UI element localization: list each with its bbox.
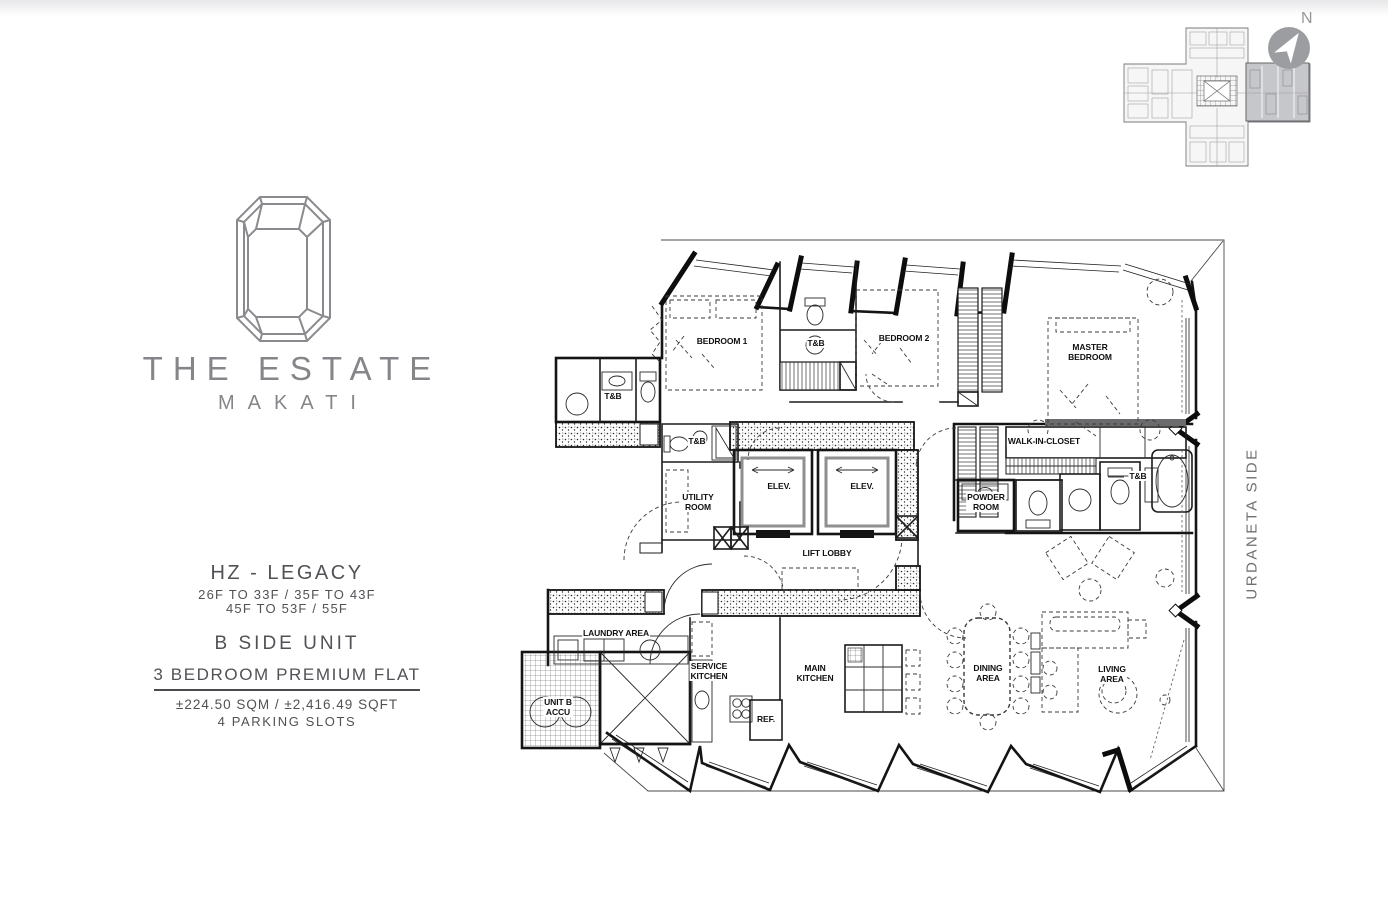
master-sitting-corner: [1046, 536, 1174, 601]
room-label-powder-room: POWDER ROOM: [966, 492, 1006, 512]
room-label-tb-master: T&B: [1128, 471, 1147, 481]
key-plan-highlighted-unit: [1246, 63, 1309, 121]
tower-name: HZ - LEGACY: [117, 562, 457, 585]
room-label-bedroom-1: BEDROOM 1: [696, 336, 749, 346]
room-label-living-area: LIVING AREA: [1097, 664, 1127, 684]
room-label-service-kitchen: SERVICE KITCHEN: [689, 661, 728, 681]
urdaneta-side-label: URDANETA SIDE: [1244, 444, 1261, 604]
bedroom2-wardrobe: [958, 288, 1002, 406]
unit-plan: [522, 254, 1197, 792]
floor-plan-canvas: N: [0, 0, 1388, 912]
floor-plan-sheet: N: [0, 0, 1388, 912]
room-label-tb-utility: T&B: [687, 436, 706, 446]
room-label-utility-room: UTILITY ROOM: [681, 492, 714, 512]
unit-type: 3 BEDROOM PREMIUM FLAT: [117, 665, 457, 685]
room-label-laundry-area: LAUNDRY AREA: [582, 628, 650, 638]
brand-title: THE ESTATE: [117, 350, 457, 388]
room-label-elevator-1: ELEV.: [766, 481, 791, 491]
kitchen-island: [845, 645, 920, 714]
room-label-bedroom-2: BEDROOM 2: [878, 333, 931, 343]
room-label-unit-b-accu: UNIT B ACCU: [543, 697, 573, 717]
room-label-lift-lobby: LIFT LOBBY: [801, 548, 852, 558]
room-label-dining-area: DINING AREA: [972, 663, 1003, 683]
brand-subtitle: MAKATI: [117, 392, 457, 415]
unit-name: B SIDE UNIT: [117, 633, 457, 655]
parking-slots: 4 PARKING SLOTS: [117, 714, 457, 729]
compass-north-label: N: [1301, 10, 1313, 27]
living-set: [1031, 612, 1170, 713]
brand-logo-gem-icon: [237, 197, 330, 341]
room-label-elevator-2: ELEV.: [849, 481, 874, 491]
room-label-master-bedroom: MASTER BEDROOM: [1067, 342, 1113, 362]
room-label-tb-common: T&B: [603, 391, 622, 401]
room-label-tb-bedroom-1: T&B: [806, 338, 825, 348]
unit-type-underline: [154, 689, 420, 691]
elevator-shafts: [714, 450, 918, 549]
unit-area: ±224.50 SQM / ±2,416.49 SQFT: [117, 697, 457, 712]
floor-range-line2: 45F TO 53F / 55F: [117, 601, 457, 616]
floor-range-line1: 26F TO 33F / 35F TO 43F: [117, 587, 457, 602]
room-label-ref: REF.: [756, 714, 776, 724]
room-label-main-kitchen: MAIN KITCHEN: [795, 663, 834, 683]
room-label-walk-in-closet: WALK-IN-CLOSET: [1007, 436, 1081, 446]
compass: N: [1268, 10, 1313, 69]
